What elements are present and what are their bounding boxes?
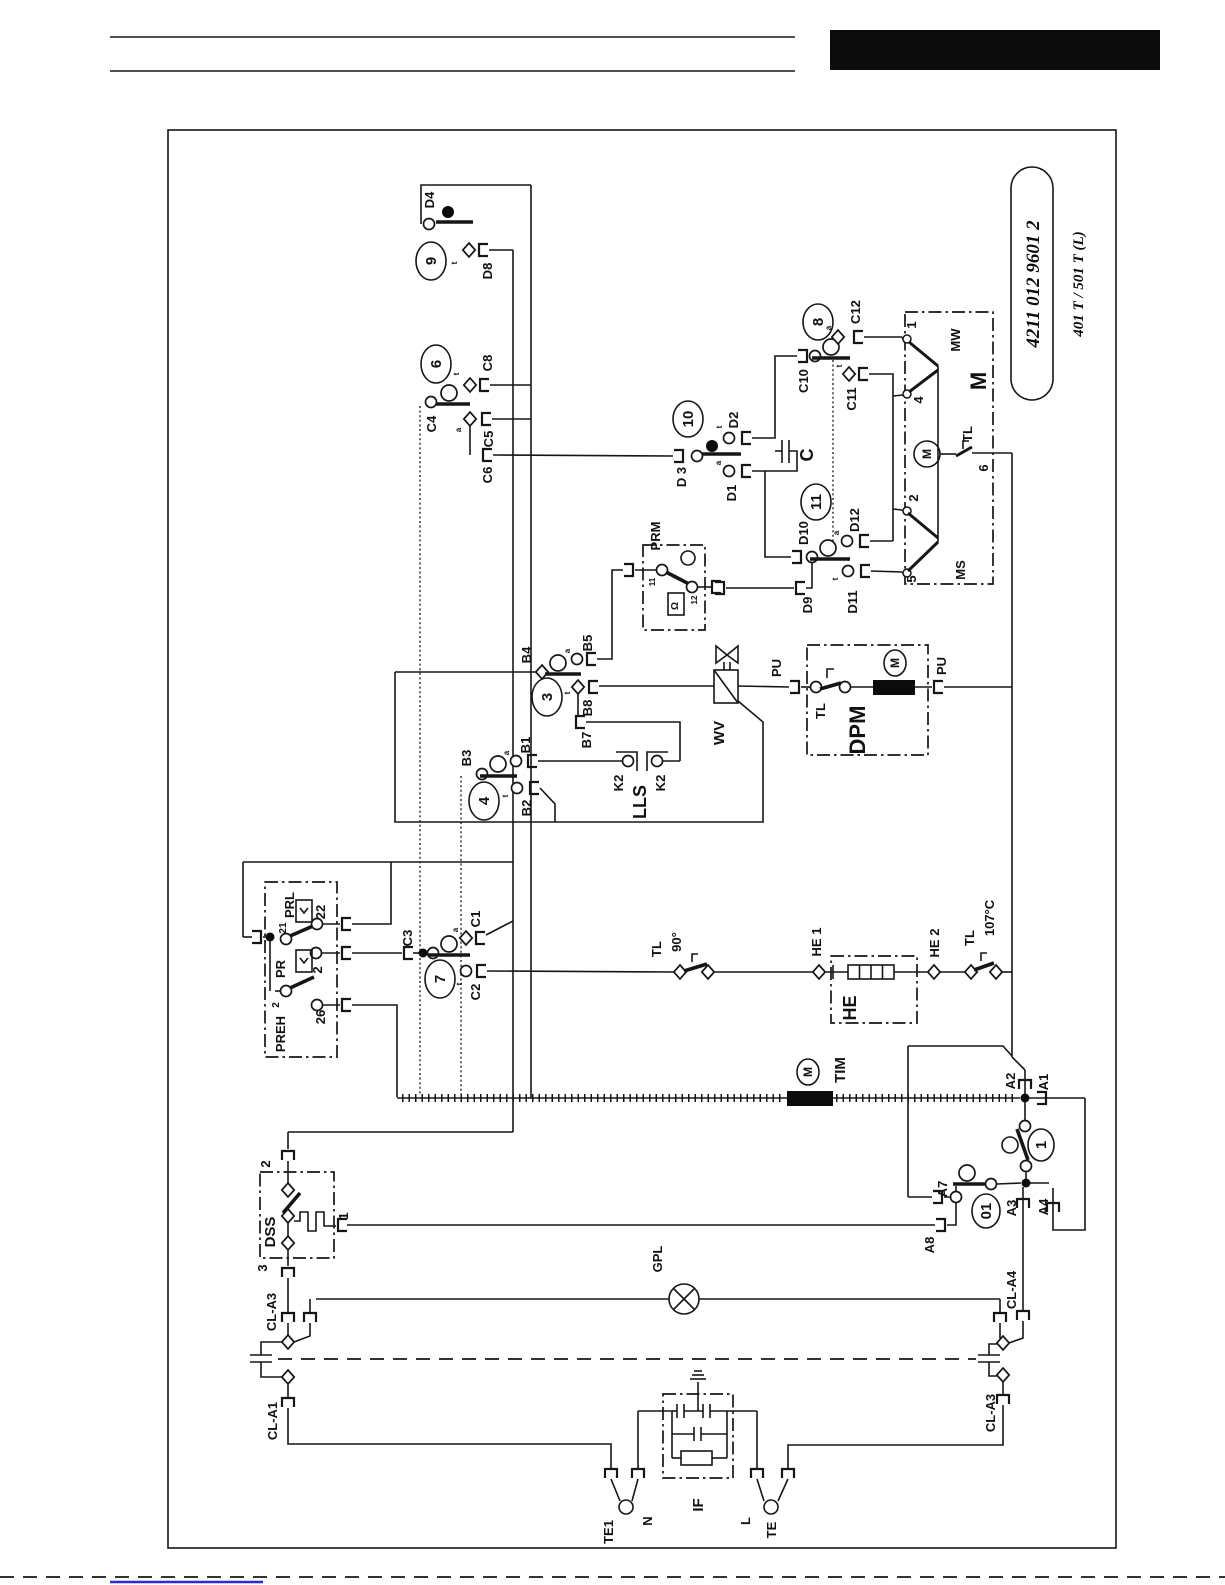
- prm-terminal-12: 12: [690, 595, 699, 604]
- label-90deg: 90°: [669, 932, 684, 952]
- label-26: 26: [313, 1010, 328, 1024]
- label-107c: 107°C: [982, 899, 997, 936]
- tick: a: [832, 530, 841, 535]
- label-c6: C6: [480, 467, 495, 484]
- prm-symbol: Ω: [670, 602, 681, 610]
- label-cl-a3-left: CL-A3: [264, 1293, 279, 1331]
- label-b7: B7: [579, 732, 594, 749]
- label-dpm: DPM: [845, 706, 870, 755]
- label-22: 22: [313, 905, 328, 919]
- label-he2: HE 2: [927, 929, 942, 958]
- dpm-winding: [873, 680, 915, 695]
- label-dss-2: 2: [258, 1160, 273, 1167]
- tick: t: [450, 261, 459, 264]
- label-c10: C10: [796, 369, 811, 393]
- label-prm: PRM: [648, 522, 663, 551]
- motor-terminal-1: 1: [904, 321, 919, 328]
- group-lls: B3 a B1 K2 K2 LLS 4 t B2: [459, 737, 680, 822]
- step-4: 4: [476, 796, 493, 805]
- label-ms: MS: [953, 560, 968, 580]
- group-motor: 1 4 2 5 MW M MS M TL 6: [903, 312, 1012, 584]
- label-d4: D4: [422, 191, 437, 208]
- group-c4-c6: 6 t C8 C4 a C5 C6: [421, 345, 673, 483]
- contact-dot: [706, 440, 718, 452]
- tick: a: [563, 648, 572, 653]
- group-if: IF TE1 N L TE: [601, 1371, 794, 1544]
- step-3: 3: [539, 693, 556, 701]
- motor-terminal-4: 4: [911, 396, 926, 404]
- label-cl-a1: CL-A1: [265, 1402, 280, 1440]
- label-c12: C12: [848, 300, 863, 324]
- prm-terminal-11: 11: [648, 577, 657, 586]
- label-k2-right: K2: [653, 775, 668, 792]
- label-c3: C3: [400, 930, 415, 947]
- dpm-m: M: [888, 658, 902, 668]
- label-d8: D8: [480, 263, 495, 280]
- tick: t: [835, 364, 844, 367]
- label-d1: D1: [724, 485, 739, 502]
- group-a: A2 A1 A4 1 A3 A7 A8 01: [347, 1046, 1085, 1311]
- label-d11: D11: [845, 590, 860, 613]
- label-d9: D9: [800, 597, 815, 614]
- label-b2: B2: [519, 800, 534, 817]
- label-preh: PREH: [273, 1016, 288, 1052]
- label-he: HE: [840, 995, 860, 1020]
- page-footer: [0, 1577, 1225, 1582]
- step-11: 11: [808, 494, 825, 510]
- step-1: 1: [1033, 1141, 1050, 1149]
- motor-lead-wires: [902, 337, 903, 573]
- label-a1: A1: [1036, 1074, 1051, 1091]
- label-prl: PRL: [282, 892, 297, 918]
- label-cl-a4: CL-A4: [1004, 1270, 1019, 1309]
- terminal-post-n: [619, 1500, 633, 1514]
- tick: a: [824, 325, 833, 330]
- label-a2: A2: [1003, 1073, 1018, 1090]
- label-k2-left: K2: [611, 775, 626, 792]
- label-c5: C5: [481, 431, 496, 448]
- motor-m: M: [920, 449, 934, 459]
- tick: t: [501, 794, 510, 797]
- label-2-common: 2: [271, 1002, 282, 1008]
- tim-winding: [787, 1091, 833, 1106]
- step-7: 7: [432, 975, 449, 983]
- label-a8: A8: [922, 1237, 937, 1254]
- group-c3: C3 a C1 7 t C2: [400, 911, 676, 1001]
- tick: a: [502, 750, 511, 755]
- tick: t: [831, 577, 840, 580]
- schematic-svg: 4211 012 9601 2 401 T / 501 T (L) D4 9 t…: [0, 0, 1225, 1585]
- label-tl-dpm: TL: [813, 703, 828, 719]
- label-dss-1: 1: [336, 1212, 351, 1219]
- label-2-pr: 2: [310, 966, 325, 973]
- label-tl90: TL: [649, 941, 664, 957]
- step-9: 9: [423, 257, 440, 265]
- label-he1: HE 1: [809, 928, 824, 957]
- label-tl-motor: TL: [960, 426, 975, 442]
- label-pu-right: PU: [934, 657, 949, 675]
- label-c11: C11: [844, 387, 859, 410]
- group-cl-left: CL-A3 CL-A1: [250, 1293, 611, 1468]
- group-dpm: PU TL M DPM PU: [769, 645, 1012, 755]
- label-b8: B8: [580, 700, 595, 717]
- group-gpl: GPL: [316, 1246, 1000, 1314]
- tick: t: [452, 372, 461, 375]
- label-a3: A3: [1004, 1200, 1019, 1217]
- redaction-black-box: [830, 30, 1160, 70]
- step-8: 8: [810, 318, 827, 326]
- motor-terminal-5: 5: [904, 575, 919, 582]
- contact-dot: [442, 206, 454, 218]
- group-preh: PREH PRL 21 22 PR 2 2 26: [243, 862, 402, 1097]
- label-dss-3: 3: [255, 1264, 270, 1271]
- label-c8: C8: [480, 355, 495, 372]
- motor-box: [905, 312, 993, 584]
- label-l: L: [738, 1517, 753, 1525]
- tick: a: [454, 427, 463, 432]
- label-d12: D12: [847, 508, 862, 532]
- label-cap-c: C: [797, 449, 817, 462]
- step-01: 01: [978, 1203, 995, 1220]
- label-c4: C4: [424, 415, 439, 432]
- label-c1: C1: [468, 911, 483, 928]
- tim-m: M: [801, 1067, 815, 1077]
- label-lls: LLS: [630, 785, 650, 819]
- label-wv: WV: [711, 721, 728, 745]
- label-dss: DSS: [262, 1217, 279, 1248]
- tick: a: [451, 927, 460, 932]
- part-number-plate: 4211 012 9601 2 401 T / 501 T (L): [1011, 167, 1087, 400]
- model-number: 401 T / 501 T (L): [1071, 231, 1087, 337]
- group-heater: TL 90° HE 1 HE HE 2 TL 107°C: [649, 899, 1012, 1023]
- label-tim: TIM: [832, 1057, 849, 1083]
- label-d3: D 3: [674, 467, 689, 487]
- terminal-post-l: [764, 1500, 778, 1514]
- label-cl-a3-right: CL-A3: [983, 1394, 998, 1432]
- tick: t: [715, 425, 724, 428]
- label-b4: B4: [519, 646, 534, 663]
- label-tl107: TL: [962, 930, 977, 946]
- motor-terminal-6: 6: [976, 464, 991, 471]
- label-pu-left: PU: [769, 659, 784, 677]
- label-b1: B1: [518, 737, 533, 754]
- step-10: 10: [680, 411, 697, 428]
- page-header: [110, 30, 1160, 71]
- label-b5: B5: [580, 635, 595, 652]
- label-d10: D10: [796, 521, 811, 545]
- motor-terminal-2: 2: [906, 494, 921, 501]
- step-6: 6: [428, 360, 445, 368]
- label-gpl: GPL: [650, 1246, 665, 1273]
- label-n: N: [640, 1516, 655, 1525]
- tick: t: [455, 982, 464, 985]
- group-prm: PRM 11 12 Ω: [624, 522, 721, 630]
- label-te1: TE1: [601, 1520, 616, 1544]
- label-a4: A4: [1036, 1198, 1051, 1215]
- part-number: 4211 012 9601 2: [1023, 220, 1044, 349]
- label-if: IF: [690, 1498, 707, 1511]
- label-m-big: M: [966, 372, 991, 390]
- group-d10: 11 D10 a D12 D9 t D11: [715, 484, 902, 614]
- label-te: TE: [764, 1521, 779, 1538]
- scanned-schematic-page: 4211 012 9601 2 401 T / 501 T (L) D4 9 t…: [0, 0, 1225, 1585]
- label-b3: B3: [459, 750, 474, 767]
- label-pr: PR: [273, 959, 288, 978]
- group-dss: 2 DSS 1 3: [255, 1132, 351, 1312]
- label-d2: D2: [726, 412, 741, 429]
- tick: t: [563, 691, 572, 694]
- label-21: 21: [278, 922, 289, 934]
- tick: a: [714, 460, 723, 465]
- label-c2: C2: [468, 984, 483, 1001]
- label-mw: MW: [948, 328, 963, 352]
- group-tim: M TIM: [397, 1057, 1020, 1106]
